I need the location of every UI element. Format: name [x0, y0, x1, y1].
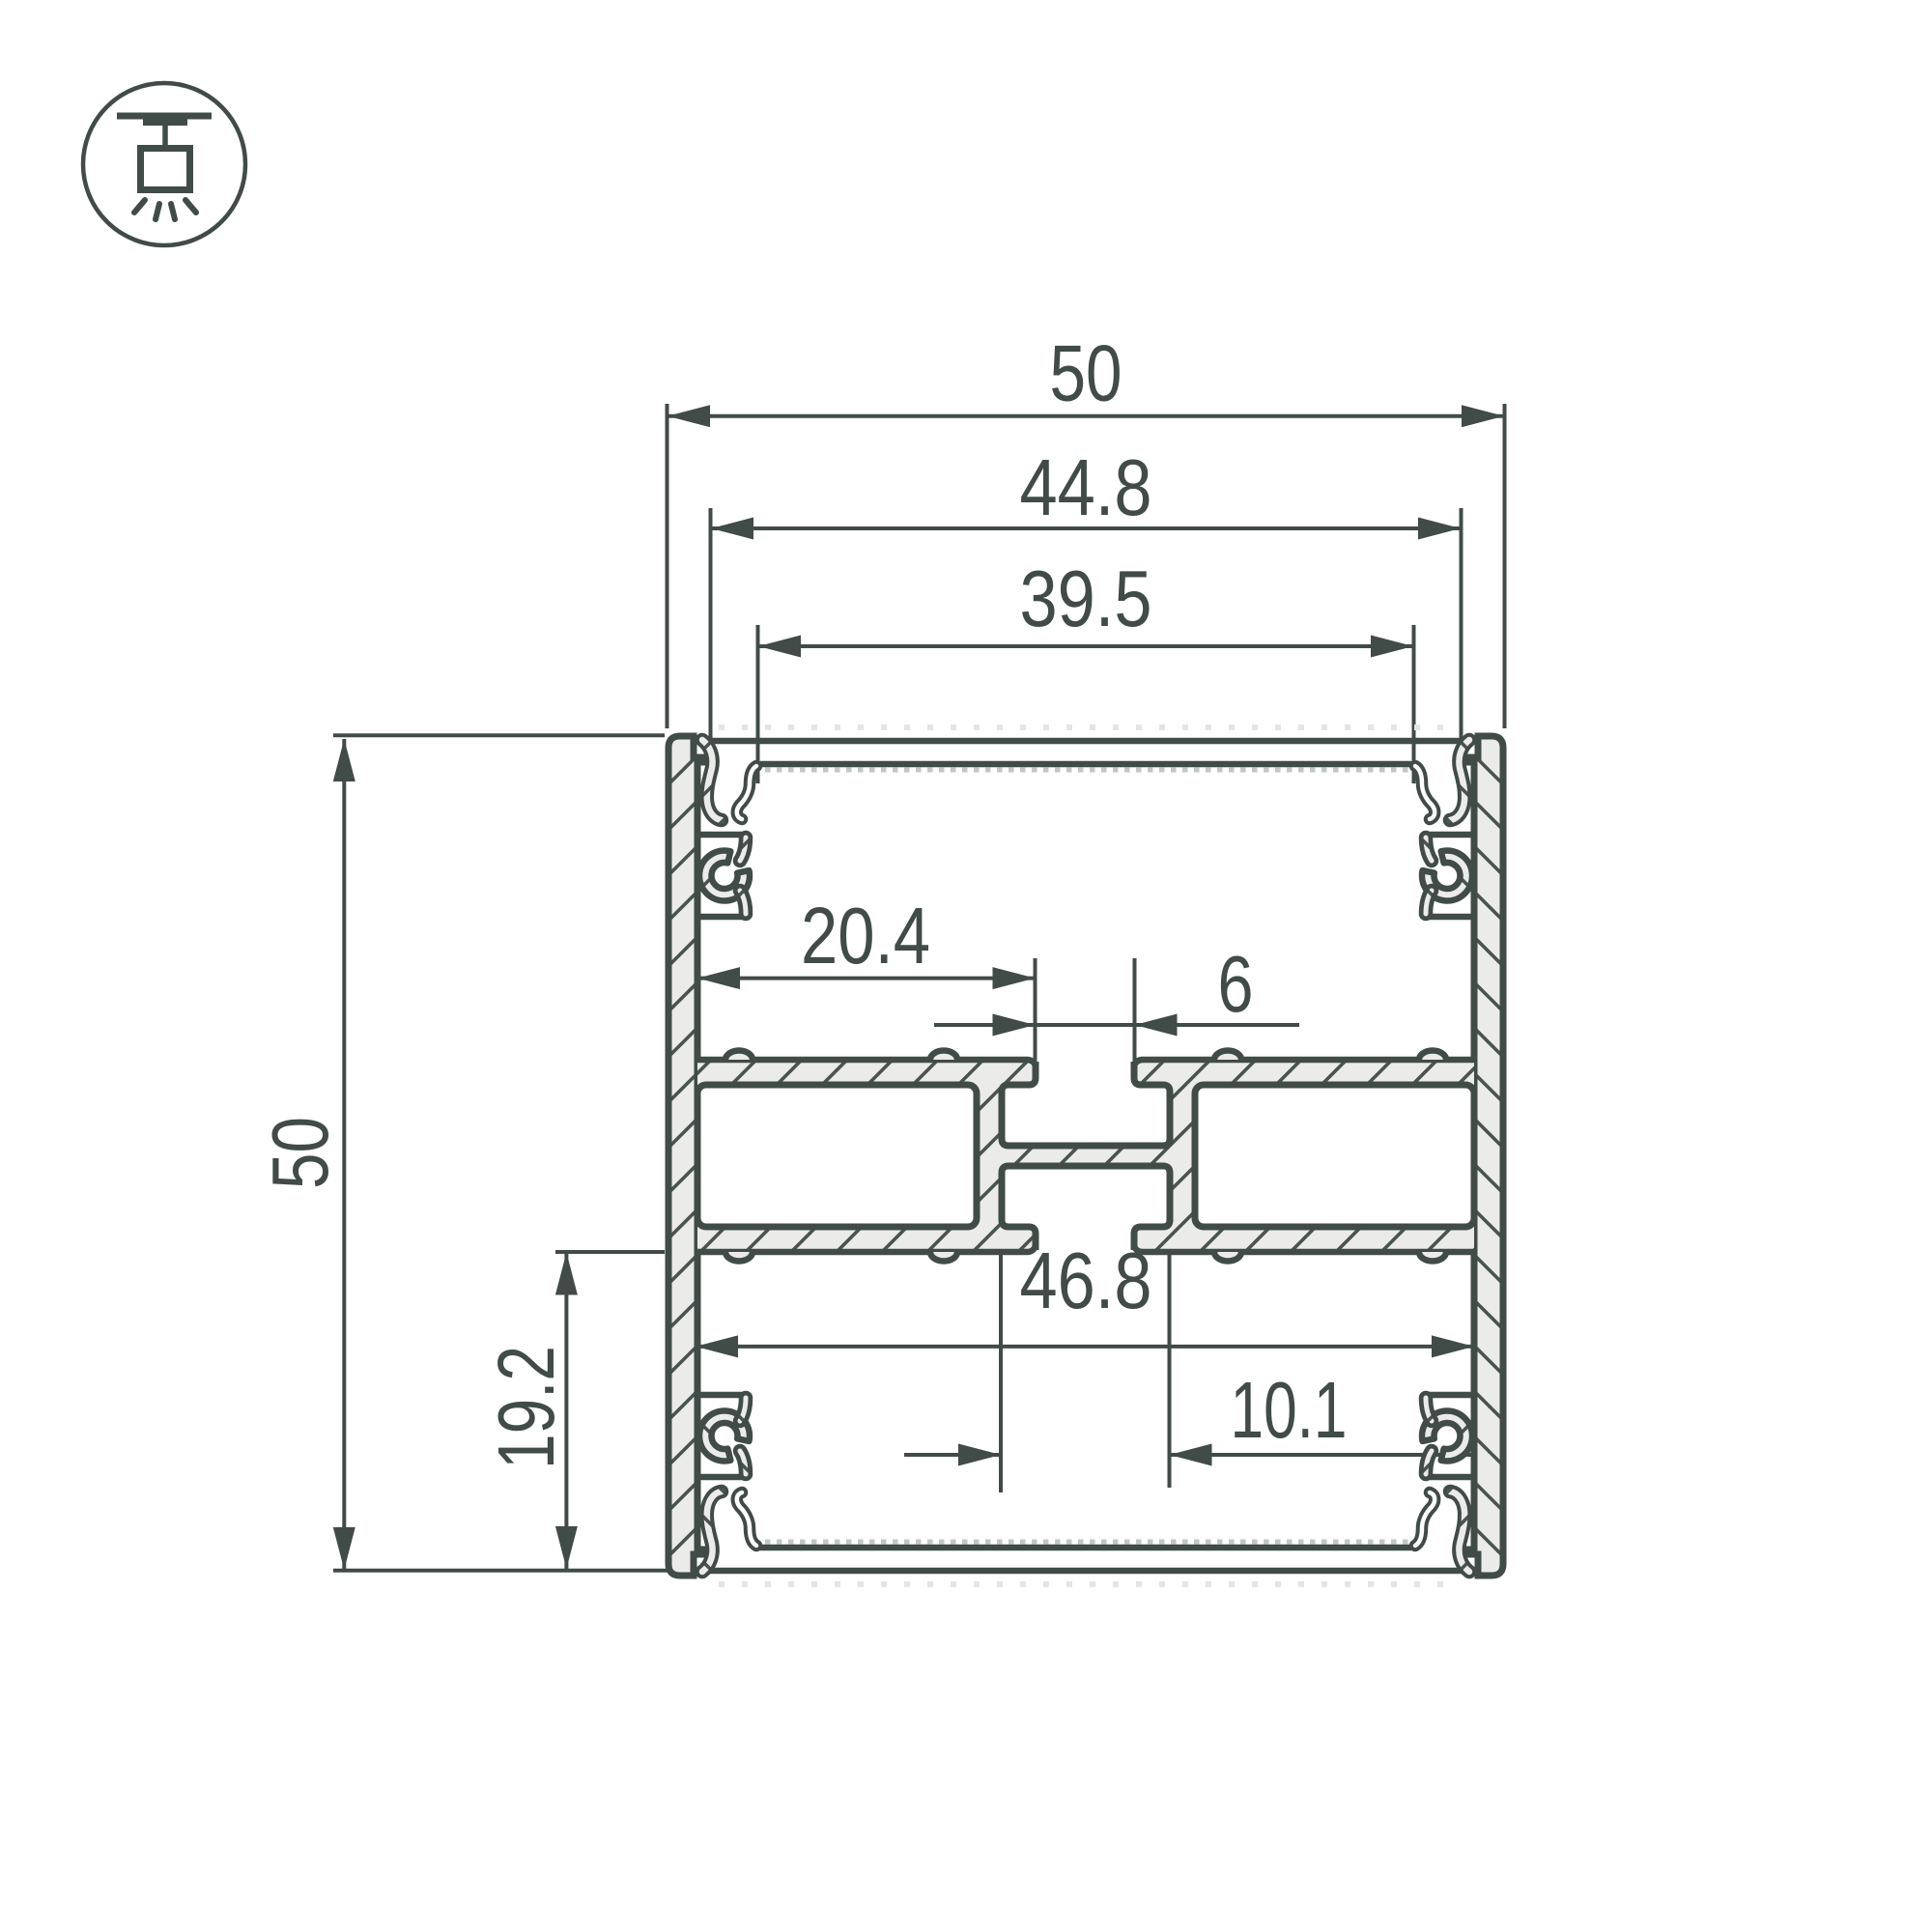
svg-text:19.2: 19.2: [481, 1346, 571, 1469]
svg-text:50: 50: [1050, 328, 1122, 418]
svg-text:20.4: 20.4: [801, 891, 930, 980]
svg-text:6: 6: [1218, 939, 1254, 1029]
svg-text:10.1: 10.1: [1231, 1365, 1348, 1455]
svg-text:50: 50: [255, 1117, 345, 1189]
svg-text:39.5: 39.5: [1020, 554, 1152, 643]
svg-text:44.8: 44.8: [1020, 442, 1152, 532]
